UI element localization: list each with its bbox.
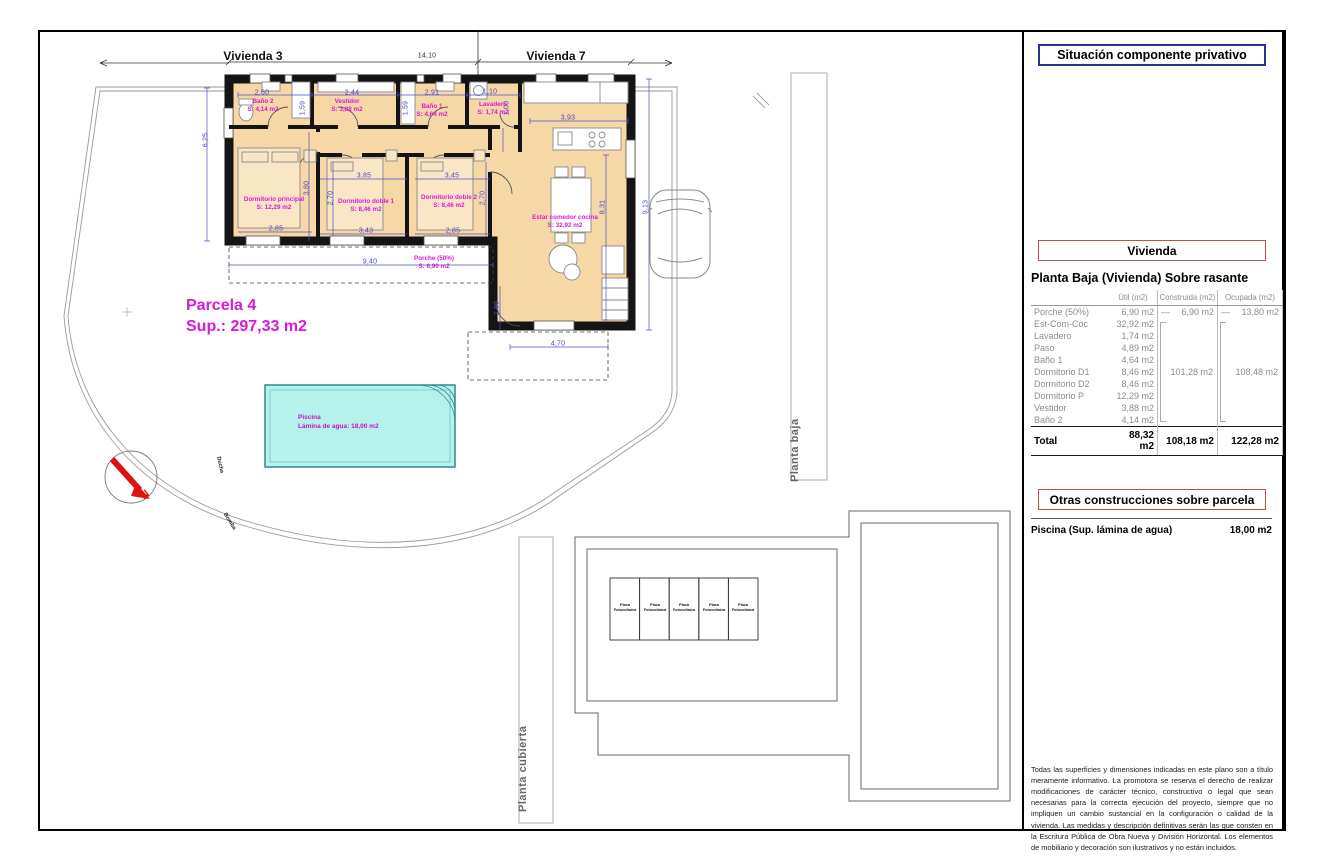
table-cell: 6,90 m2 xyxy=(1109,306,1158,319)
table-column-header: Construida (m2) xyxy=(1158,290,1218,306)
table-cell: 4,14 m2 xyxy=(1109,414,1158,427)
table-cell: 4,89 m2 xyxy=(1109,342,1158,354)
surfaces-table-body: Porche (50%)6,90 m2—6,90 m2—13,80 m2Est-… xyxy=(1031,306,1283,456)
vivienda-7-label: Vivienda 7 xyxy=(526,49,585,63)
pool-subtitle: Lámina de agua: 18,00 m2 xyxy=(298,422,379,431)
table-cell: —13,80 m2 xyxy=(1218,306,1283,319)
car-icon xyxy=(648,190,712,278)
table-column-header: Ocupada (m2) xyxy=(1218,290,1283,306)
table-cell: Lavadero xyxy=(1031,330,1109,342)
surfaces-table-header: Útil (m2)Construida (m2)Ocupada (m2) xyxy=(1031,290,1283,306)
table-column-header xyxy=(1031,290,1109,306)
disclaimer-text: Todas las superficies y dimensiones indi… xyxy=(1031,764,1273,853)
table-cell: 12,29 m2 xyxy=(1109,390,1158,402)
table-cell: Baño 1 xyxy=(1031,354,1109,366)
parcela-surface: Sup.: 297,33 m2 xyxy=(186,317,307,338)
table-cell: 8,46 m2 xyxy=(1109,366,1158,378)
otras-title-box: Otras construcciones sobre parcela xyxy=(1038,489,1266,510)
surfaces-table: Útil (m2)Construida (m2)Ocupada (m2) Por… xyxy=(1031,290,1283,456)
pool-title: Piscina xyxy=(298,413,379,422)
parcela-title: Parcela 4 xyxy=(186,296,307,317)
situacion-title: Situación componente privativo xyxy=(1057,48,1247,62)
table-cell: 101,28 m2 xyxy=(1158,318,1218,427)
table-cell: 1,74 m2 xyxy=(1109,330,1158,342)
table-cell: Dormitorio P xyxy=(1031,390,1109,402)
pool-label: Piscina Lámina de agua: 18,00 m2 xyxy=(298,413,379,431)
table-row: Porche (50%)6,90 m2—6,90 m2—13,80 m2 xyxy=(1031,306,1283,319)
piscina-summary-row: Piscina (Sup. lámina de agua) 18,00 m2 xyxy=(1031,518,1272,536)
vivienda-3-label: Vivienda 3 xyxy=(223,49,282,63)
table-cell: Dormitorio D1 xyxy=(1031,366,1109,378)
table-cell: 108,48 m2 xyxy=(1218,318,1283,427)
table-heading: Planta Baja (Vivienda) Sobre rasante xyxy=(1031,271,1272,285)
table-cell: Paso xyxy=(1031,342,1109,354)
table-cell: Dormitorio D2 xyxy=(1031,378,1109,390)
table-total-row: Total88,32 m2108,18 m2122,28 m2 xyxy=(1031,427,1283,456)
table-cell: Baño 2 xyxy=(1031,414,1109,427)
table-cell: Porche (50%) xyxy=(1031,306,1109,319)
planta-baja-label: Planta baja xyxy=(789,418,801,482)
table-cell: 3,88 m2 xyxy=(1109,402,1158,414)
table-column-header: Útil (m2) xyxy=(1109,290,1158,306)
table-cell: 8,46 m2 xyxy=(1109,378,1158,390)
parcela-label: Parcela 4 Sup.: 297,33 m2 xyxy=(186,296,307,338)
roof-plan xyxy=(575,511,1010,801)
table-cell: 108,18 m2 xyxy=(1158,427,1218,456)
table-cell: 32,92 m2 xyxy=(1109,318,1158,330)
table-row: Est-Com-Coc32,92 m2101,28 m2108,48 m2 xyxy=(1031,318,1283,330)
piscina-label: Piscina (Sup. lámina de agua) xyxy=(1031,525,1172,536)
table-cell: 122,28 m2 xyxy=(1218,427,1283,456)
table-cell: 88,32 m2 xyxy=(1109,427,1158,456)
vivienda-title-box: Vivienda xyxy=(1038,240,1266,261)
table-cell: 4,64 m2 xyxy=(1109,354,1158,366)
vivienda-title: Vivienda xyxy=(1127,244,1176,258)
otras-title: Otras construcciones sobre parcela xyxy=(1050,493,1255,507)
piscina-value: 18,00 m2 xyxy=(1230,525,1272,536)
table-cell: Total xyxy=(1031,427,1109,456)
table-cell: Vestidor xyxy=(1031,402,1109,414)
table-cell: —6,90 m2 xyxy=(1158,306,1218,319)
top-dimension-lines xyxy=(100,31,672,79)
situacion-title-box: Situación componente privativo xyxy=(1038,44,1266,66)
planta-cubierta-label: Planta cubierta xyxy=(517,726,529,812)
photovoltaic-panels xyxy=(610,578,758,640)
table-cell: Est-Com-Coc xyxy=(1031,318,1109,330)
